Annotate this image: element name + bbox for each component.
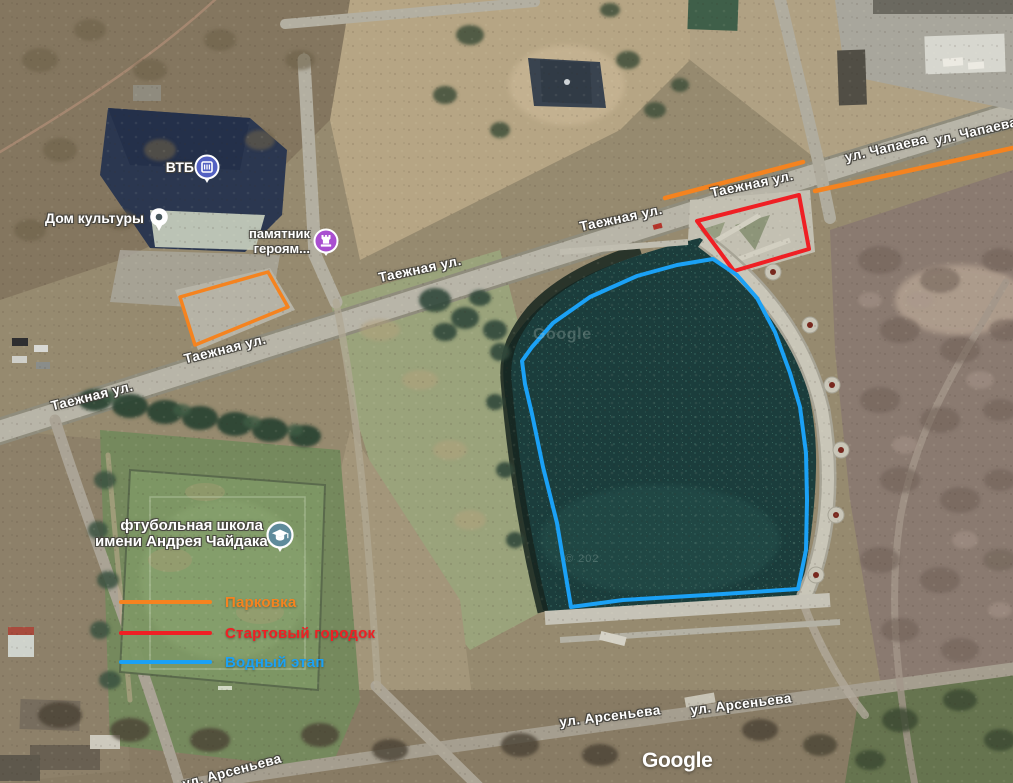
satellite-map[interactable]: Таежная ул. Таежная ул. Таежная ул. Таеж… [0,0,1013,783]
poi-label-vtb[interactable]: ВТБ [120,159,194,175]
legend-label-start-area: Стартовый городок [225,625,375,642]
legend-label-parking: Парковка [225,594,296,611]
legend-line-parking [119,600,212,605]
copyright-watermark: © 202 [565,553,600,565]
legend-label-water-stage: Водный этап [225,654,325,671]
legend-row-parking: Парковка [119,592,296,612]
poi-label-football-school[interactable]: фтубольная школа имени Андрея Чайдака [95,518,263,550]
legend-row-water-stage: Водный этап [119,652,325,672]
place-pin-icon [156,214,163,221]
poi-label-monument[interactable]: памятник героям... [230,226,310,256]
google-logo[interactable]: Google [642,749,713,773]
legend-line-start-area [119,631,212,636]
legend-line-water-stage [119,660,212,665]
google-watermark: Google [533,326,592,344]
poi-label-house-of-culture[interactable]: Дом культуры [30,210,144,226]
legend-row-start-area: Стартовый городок [119,623,375,643]
